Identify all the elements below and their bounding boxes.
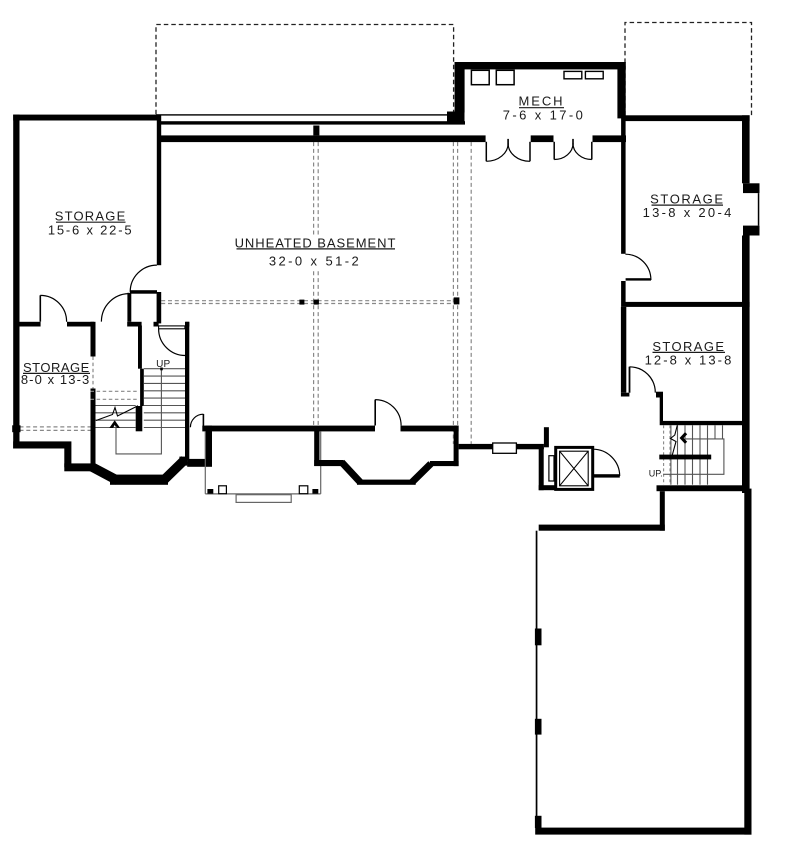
svg-text:MECH: MECH	[519, 93, 565, 108]
svg-text:7-6 x 17-0: 7-6 x 17-0	[503, 107, 586, 122]
svg-text:13-8 x 20-4: 13-8 x 20-4	[643, 205, 734, 220]
svg-text:UP: UP	[156, 359, 170, 370]
svg-text:32-0 x 51-2: 32-0 x 51-2	[269, 254, 361, 269]
svg-text:12-8 x 13-8: 12-8 x 13-8	[645, 353, 734, 368]
svg-text:STORAGE: STORAGE	[55, 209, 127, 224]
svg-text:UNHEATED BASEMENT: UNHEATED BASEMENT	[235, 235, 397, 250]
svg-text:15-6 x 22-5: 15-6 x 22-5	[48, 223, 134, 238]
svg-text:UP.: UP.	[649, 468, 663, 478]
svg-text:8-0 x 13-3: 8-0 x 13-3	[21, 372, 91, 387]
